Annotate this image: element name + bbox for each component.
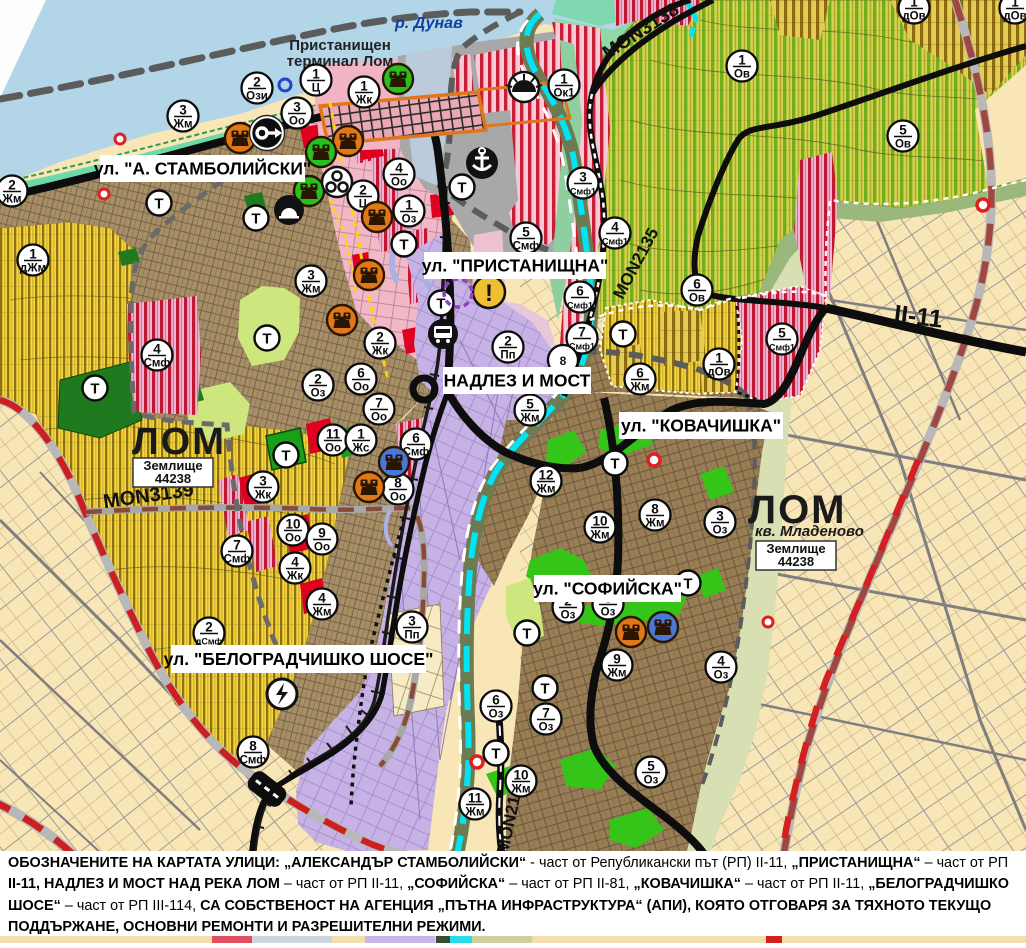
svg-text:5: 5 [899, 123, 907, 138]
svg-text:5: 5 [522, 225, 530, 240]
svg-text:1: 1 [1011, 0, 1019, 10]
svg-text:Жм: Жм [465, 807, 485, 819]
svg-text:Ок1: Ок1 [553, 88, 575, 100]
svg-text:1: 1 [405, 198, 413, 213]
svg-text:Т: Т [491, 746, 500, 763]
svg-text:Пп: Пп [404, 630, 419, 642]
svg-text:4: 4 [395, 161, 403, 176]
svg-text:7: 7 [375, 396, 383, 411]
svg-text:7: 7 [542, 706, 550, 721]
svg-text:6: 6 [357, 366, 365, 381]
svg-text:Оз: Оз [601, 607, 616, 619]
svg-text:4: 4 [153, 342, 161, 357]
svg-text:10: 10 [513, 768, 528, 783]
svg-text:4: 4 [611, 220, 619, 235]
svg-text:ул. "СОФИЙСКА": ул. "СОФИЙСКА" [533, 578, 682, 599]
svg-text:Оо: Оо [353, 382, 369, 394]
svg-text:дОв: дОв [902, 11, 925, 23]
svg-text:2: 2 [253, 75, 261, 90]
svg-text:Т: Т [399, 237, 408, 254]
svg-text:12: 12 [538, 468, 553, 483]
svg-text:Оз: Оз [644, 775, 659, 787]
svg-text:6: 6 [492, 693, 500, 708]
svg-text:3: 3 [716, 509, 724, 524]
svg-text:Жм: Жм [173, 119, 193, 131]
svg-text:3: 3 [307, 268, 315, 283]
svg-text:Смф: Смф [144, 358, 171, 370]
svg-text:!: ! [485, 280, 493, 307]
svg-text:Жк: Жк [286, 571, 303, 583]
svg-text:7: 7 [233, 538, 241, 553]
svg-text:Оз: Оз [402, 214, 417, 226]
svg-text:6: 6 [576, 284, 584, 299]
svg-text:1: 1 [715, 351, 723, 366]
svg-text:4: 4 [291, 555, 299, 570]
svg-text:Ози: Ози [246, 91, 268, 103]
svg-text:Пристанищен: Пристанищен [289, 37, 391, 54]
svg-text:11: 11 [326, 427, 341, 442]
svg-text:Жм: Жм [590, 530, 610, 542]
svg-text:II-11: II-11 [893, 300, 945, 334]
svg-text:Оз: Оз [539, 722, 554, 734]
svg-text:Жс: Жс [352, 443, 370, 455]
svg-text:Пп: Пп [500, 350, 515, 362]
svg-text:6: 6 [412, 431, 420, 446]
svg-text:8: 8 [249, 739, 257, 754]
svg-text:Жм: Жм [312, 607, 332, 619]
svg-text:Смф1: Смф1 [769, 343, 795, 353]
svg-text:Т: Т [251, 211, 260, 228]
svg-text:5: 5 [647, 759, 655, 774]
svg-text:6: 6 [636, 366, 644, 381]
svg-text:Смф: Смф [224, 554, 251, 566]
svg-text:Т: Т [618, 327, 627, 344]
svg-text:Оо: Оо [391, 177, 407, 189]
svg-text:2: 2 [314, 372, 322, 387]
svg-text:р. Дунав: р. Дунав [394, 15, 463, 32]
svg-text:Т: Т [154, 196, 163, 213]
svg-text:5: 5 [778, 326, 786, 341]
svg-text:Жм: Жм [607, 668, 627, 680]
svg-text:Жм: Жм [536, 484, 556, 496]
svg-text:Оо: Оо [325, 443, 341, 455]
svg-text:1: 1 [360, 79, 368, 94]
svg-text:дОв: дОв [707, 367, 730, 379]
svg-text:2: 2 [504, 334, 512, 349]
svg-text:1: 1 [312, 67, 320, 82]
svg-text:1: 1 [29, 247, 37, 262]
svg-text:Жк: Жк [371, 346, 388, 358]
svg-text:10: 10 [592, 514, 607, 529]
svg-text:кв. Младеново: кв. Младеново [755, 523, 864, 540]
svg-text:ул. "БЕЛОГРАДЧИШКО ШОСЕ": ул. "БЕЛОГРАДЧИШКО ШОСЕ" [164, 649, 434, 669]
svg-text:Жк: Жк [355, 95, 372, 107]
svg-text:Оз: Оз [489, 709, 504, 721]
svg-text:Смф1: Смф1 [567, 301, 593, 311]
svg-text:2: 2 [376, 330, 384, 345]
svg-text:Оо: Оо [285, 533, 301, 545]
svg-text:НАДЛЕЗ И МОСТ: НАДЛЕЗ И МОСТ [444, 371, 591, 391]
svg-text:3: 3 [293, 100, 301, 115]
svg-text:1: 1 [560, 72, 568, 87]
svg-text:9: 9 [318, 526, 326, 541]
svg-text:Т: Т [683, 576, 692, 593]
svg-text:3: 3 [179, 103, 187, 118]
svg-text:1: 1 [357, 427, 365, 442]
svg-text:6: 6 [693, 277, 701, 292]
svg-text:Жм: Жм [301, 284, 321, 296]
svg-text:Оз: Оз [713, 525, 728, 537]
svg-text:Смф1: Смф1 [602, 237, 628, 247]
svg-text:Жм: Жм [520, 413, 540, 425]
svg-text:Смф: Смф [240, 755, 267, 767]
svg-text:8: 8 [651, 502, 659, 517]
svg-text:Оо: Оо [371, 412, 387, 424]
svg-text:Т: Т [90, 381, 99, 398]
svg-text:Жм: Жм [645, 518, 665, 530]
svg-text:44238: 44238 [155, 471, 191, 486]
svg-text:Оо: Оо [289, 116, 305, 128]
svg-text:9: 9 [613, 652, 621, 667]
svg-text:Оо: Оо [390, 492, 406, 504]
svg-text:Т: Т [281, 448, 290, 465]
svg-text:Т: Т [436, 296, 445, 313]
svg-text:1: 1 [910, 0, 918, 10]
svg-text:терминал Лом: терминал Лом [287, 53, 394, 70]
svg-text:ул. "ПРИСТАНИЩНА": ул. "ПРИСТАНИЩНА" [422, 256, 609, 276]
svg-text:Т: Т [522, 626, 531, 643]
svg-text:дЖм: дЖм [20, 263, 46, 275]
svg-text:Оо: Оо [314, 542, 330, 554]
svg-text:44238: 44238 [778, 554, 814, 569]
svg-text:Т: Т [457, 180, 466, 197]
svg-text:дОв: дОв [1003, 11, 1026, 23]
svg-text:Ц: Ц [312, 83, 321, 95]
svg-text:4: 4 [318, 591, 326, 606]
svg-text:3: 3 [579, 170, 587, 185]
svg-text:2: 2 [359, 183, 367, 198]
svg-text:10: 10 [285, 517, 300, 532]
svg-text:5: 5 [526, 397, 534, 412]
svg-text:ЛОМ: ЛОМ [132, 421, 226, 463]
svg-text:2: 2 [205, 620, 213, 635]
svg-text:Смф1: Смф1 [570, 187, 596, 197]
svg-text:Жм: Жм [511, 784, 531, 796]
svg-text:Жм: Жм [2, 194, 22, 206]
svg-text:1: 1 [738, 53, 746, 68]
svg-text:Смф: Смф [513, 241, 540, 253]
svg-text:11: 11 [468, 791, 483, 806]
svg-text:Жк: Жк [254, 490, 271, 502]
svg-text:Оз: Оз [714, 670, 729, 682]
svg-text:Т: Т [262, 331, 271, 348]
svg-text:Ов: Ов [734, 69, 750, 81]
svg-text:Оз: Оз [561, 610, 576, 622]
svg-text:ул. "КОВАЧИШКА": ул. "КОВАЧИШКА" [621, 416, 781, 436]
svg-text:7: 7 [578, 325, 586, 340]
svg-text:Жм: Жм [630, 382, 650, 394]
svg-text:Ов: Ов [895, 139, 911, 151]
svg-text:Т: Т [610, 456, 619, 473]
svg-text:ул. "А. СТАМБОЛИЙСКИ": ул. "А. СТАМБОЛИЙСКИ" [94, 158, 311, 179]
svg-text:Оз: Оз [311, 388, 326, 400]
svg-text:3: 3 [259, 474, 267, 489]
svg-text:2: 2 [8, 178, 16, 193]
svg-text:Т: Т [540, 681, 549, 698]
svg-text:3: 3 [408, 614, 416, 629]
svg-text:8: 8 [560, 354, 567, 368]
svg-text:Ов: Ов [689, 293, 705, 305]
svg-text:4: 4 [717, 654, 725, 669]
